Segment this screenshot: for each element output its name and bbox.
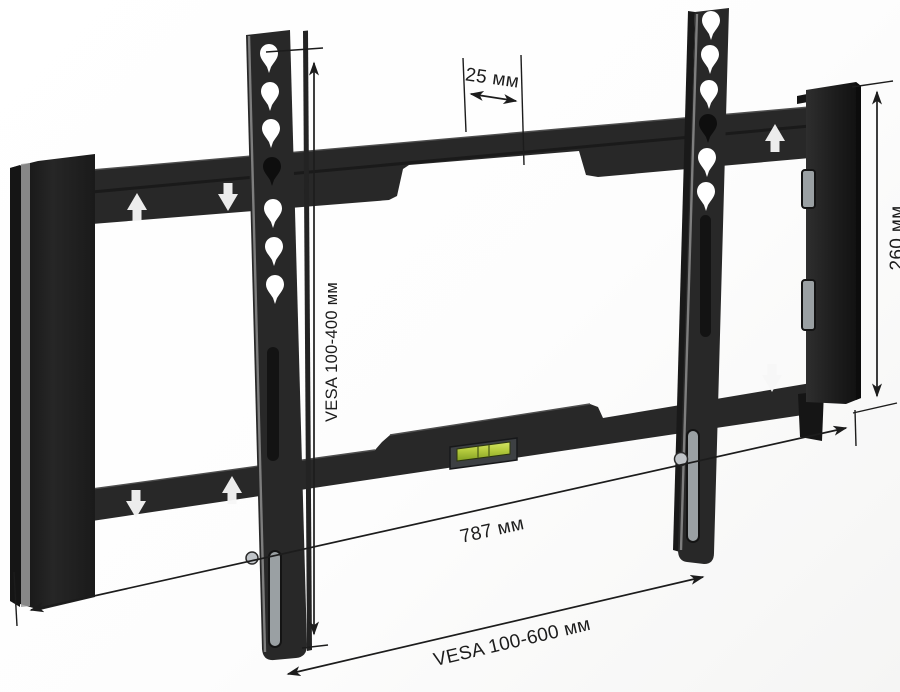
dimension-label-vesa-horizontal: VESA 100-600 мм	[432, 614, 593, 671]
dimension-label-overall-width: 787 мм	[458, 513, 526, 548]
left-cap-highlight-stripe	[21, 163, 30, 607]
adjustment-slot	[687, 430, 699, 542]
extension-line	[855, 410, 856, 446]
right-cap-side-edge	[856, 82, 861, 400]
right-end-cap	[797, 82, 861, 404]
adjustment-slot	[700, 215, 711, 337]
dimension-label-hook-spacing: 25 мм	[464, 64, 520, 92]
left-cap-side-edge	[10, 165, 20, 607]
adjustment-slot	[267, 347, 279, 461]
right-cap-body	[806, 82, 861, 404]
right-vesa-bracket	[673, 8, 729, 564]
adjustment-slot	[269, 551, 281, 647]
dimension-line	[288, 577, 703, 674]
product-image: 25 мм VESA 100-400 мм 260 мм 787 мм VESA…	[0, 0, 900, 692]
dimension-line	[471, 94, 516, 101]
dimension-label-bracket-height: 260 мм	[887, 206, 900, 271]
wall-mount-diagram: 25 мм VESA 100-400 мм 260 мм 787 мм VESA…	[0, 0, 900, 692]
right-cap-clip	[802, 280, 815, 330]
extension-line	[853, 403, 897, 413]
left-vesa-bracket	[246, 30, 312, 660]
dim-vesa-horizontal: VESA 100-600 мм	[288, 577, 703, 674]
down-arrow-icon	[762, 364, 782, 392]
dimension-label-vesa-vertical: VESA 100-400 мм	[323, 282, 341, 422]
left-end-cap	[10, 154, 95, 610]
right-cap-clip	[802, 170, 815, 208]
